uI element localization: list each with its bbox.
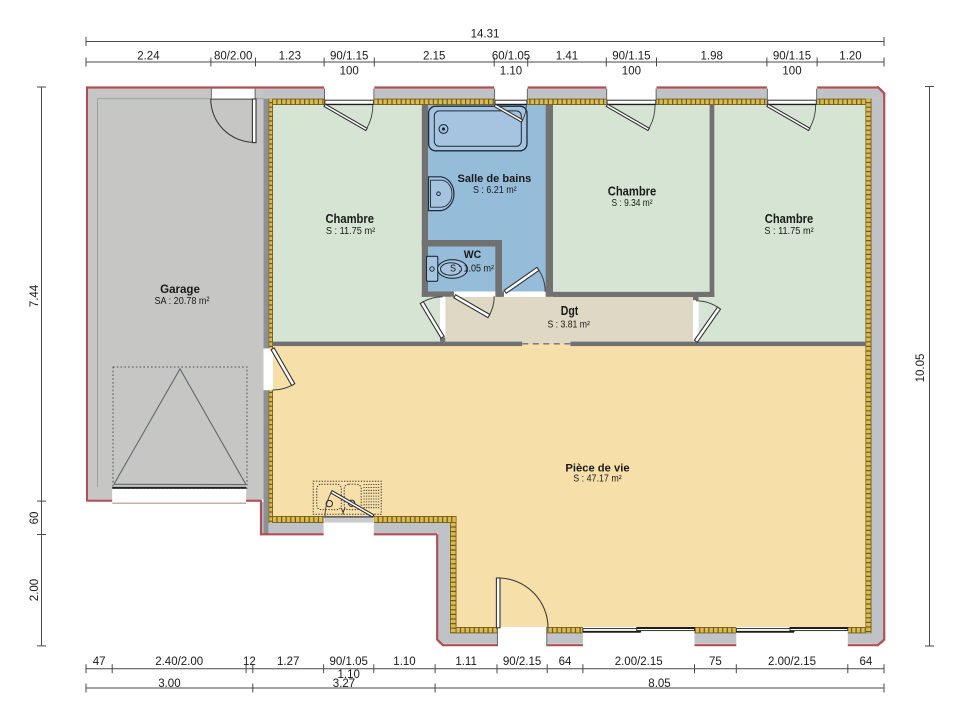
svg-text:90/1.15: 90/1.15 [612,51,650,63]
svg-text:S : 9.34 m²: S : 9.34 m² [612,198,654,209]
svg-text:Salle de bains: Salle de bains [458,173,532,185]
svg-text:Garage: Garage [160,282,200,296]
svg-text:2.24: 2.24 [137,51,160,63]
svg-text:Pièce de vie: Pièce de vie [565,463,629,475]
svg-text:8.05: 8.05 [648,678,670,690]
svg-text:S : 11.75 m²: S : 11.75 m² [326,226,376,237]
svg-text:90/2.15: 90/2.15 [503,656,541,668]
svg-text:60: 60 [29,512,41,525]
svg-text:1.41: 1.41 [556,51,578,63]
svg-text:3.00: 3.00 [158,678,180,690]
svg-text:100: 100 [782,66,801,78]
svg-text:Chambre: Chambre [765,211,814,226]
svg-text:64: 64 [559,656,572,668]
svg-text:2.00/2.15: 2.00/2.15 [768,656,816,668]
svg-text:2.40/2.00: 2.40/2.00 [155,656,203,668]
svg-text:Chambre: Chambre [325,211,374,226]
svg-text:1.11: 1.11 [455,656,477,668]
svg-text:SA : 20.78 m²: SA : 20.78 m² [155,296,211,307]
svg-text:S : 11.75 m²: S : 11.75 m² [764,226,814,237]
svg-text:1.10: 1.10 [393,656,415,668]
svg-text:7.44: 7.44 [29,284,41,307]
svg-text:12: 12 [243,656,256,668]
svg-text:80/2.00: 80/2.00 [214,51,252,63]
svg-text:14.31: 14.31 [471,29,500,41]
svg-text:1.23: 1.23 [279,51,301,63]
svg-text:1.27: 1.27 [277,656,299,668]
svg-text:S : 3.81 m²: S : 3.81 m² [547,320,590,331]
svg-text:3.27: 3.27 [333,678,355,690]
svg-text:1.10: 1.10 [500,66,522,78]
svg-text:S : 6.21 m²: S : 6.21 m² [473,185,517,196]
svg-text:10.05: 10.05 [915,354,927,383]
svg-text:1.20: 1.20 [839,51,861,63]
svg-text:75: 75 [709,656,722,668]
svg-text:90/1.15: 90/1.15 [773,51,811,63]
svg-text:90/1.15: 90/1.15 [330,51,368,63]
svg-text:2.00: 2.00 [29,579,41,601]
svg-text:1.98: 1.98 [701,51,723,63]
svg-text:47: 47 [93,656,106,668]
svg-text:100: 100 [340,66,359,78]
svg-text:S : 1.05 m²: S : 1.05 m² [450,264,495,275]
svg-text:2.00/2.15: 2.00/2.15 [615,656,663,668]
svg-text:60/1.05: 60/1.05 [492,51,530,63]
svg-text:WC: WC [464,249,482,261]
svg-text:64: 64 [860,656,873,668]
svg-text:2.15: 2.15 [423,51,445,63]
svg-text:Dgt: Dgt [561,304,579,318]
svg-text:S : 47.17 m²: S : 47.17 m² [573,474,622,485]
svg-text:90/1.05: 90/1.05 [330,656,368,668]
svg-text:100: 100 [622,66,641,78]
svg-text:Chambre: Chambre [608,183,657,198]
